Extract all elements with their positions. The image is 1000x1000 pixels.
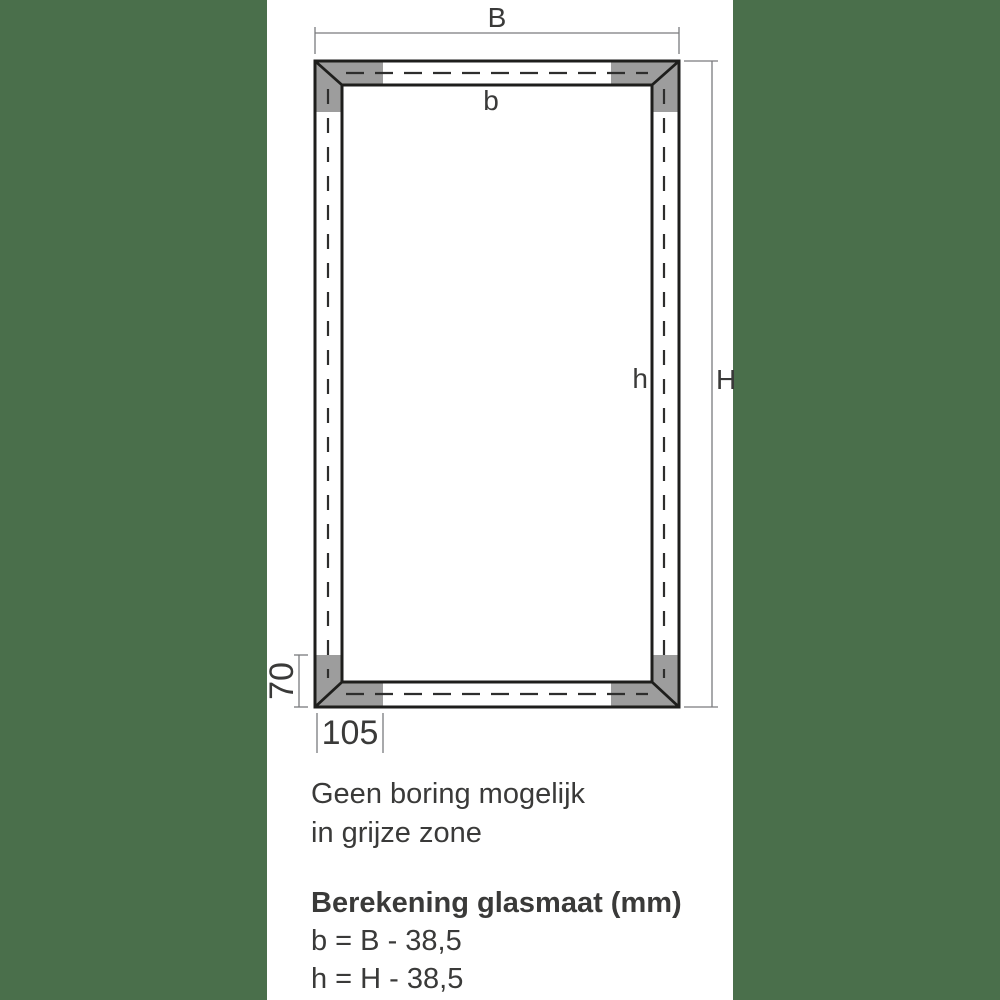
glass-height-label: h	[632, 363, 648, 394]
glass-height-formula: h = H - 38,5	[311, 963, 463, 995]
zone-width-value: 105	[322, 714, 379, 752]
frame-width-label: B	[488, 2, 507, 33]
drawing-canvas: B b h H 70 105 Geen boring mogelijk in g…	[0, 0, 1000, 1000]
no-drill-zone-top-left-vertical	[315, 61, 342, 112]
dimension-labels: B b h H 70 105	[263, 2, 736, 752]
drill-axis-lines	[328, 73, 664, 694]
no-drill-note-line1: Geen boring mogelijk	[311, 778, 586, 810]
captions: Geen boring mogelijk in grijze zone Bere…	[311, 778, 682, 995]
no-drill-note-line2: in grijze zone	[311, 817, 482, 849]
glass-size-title: Berekening glasmaat (mm)	[311, 887, 682, 919]
frame-diagram-svg: B b h H 70 105 Geen boring mogelijk in g…	[0, 0, 1000, 1000]
matte-bar-right	[733, 0, 1000, 1000]
frame-height-label: H	[716, 364, 736, 395]
no-drill-zone-bottom-left-vertical	[315, 655, 342, 707]
matte-bar-left	[0, 0, 267, 1000]
glass-width-label: b	[483, 85, 499, 116]
frame-inner-edge	[342, 85, 652, 682]
frame-outline	[315, 61, 679, 707]
zone-height-value: 70	[263, 662, 301, 700]
glass-width-formula: b = B - 38,5	[311, 925, 462, 957]
dimension-lines	[294, 27, 718, 753]
no-drill-zone-bottom-right-vertical	[652, 655, 679, 707]
frame-outer-edge	[315, 61, 679, 707]
no-drill-zone-top-right-vertical	[652, 61, 679, 112]
no-drill-zones	[315, 61, 679, 707]
